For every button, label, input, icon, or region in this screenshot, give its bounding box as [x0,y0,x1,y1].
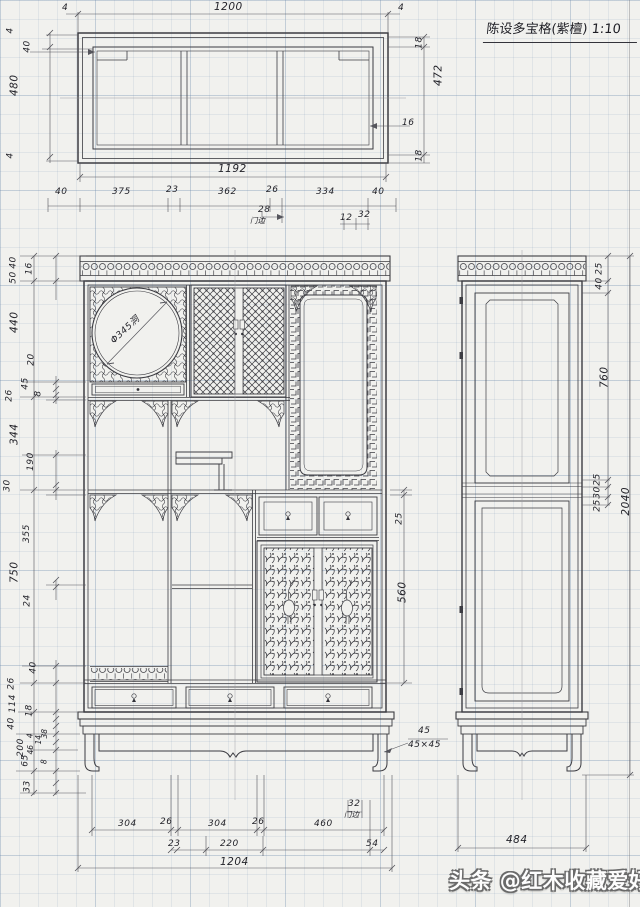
dim-label: 26 [160,818,172,827]
dim-label: 25 [396,512,405,524]
dim-label: 40 [30,661,39,673]
dim-label: 26 [6,389,15,401]
dim-label: 32 [358,211,370,220]
dim-label: 4 [62,4,68,13]
panel-corner-hooks [97,51,369,60]
dim-label: 18 [26,704,35,716]
dim-label: 480 [10,74,21,96]
dim-label: 23 [166,186,178,195]
front-base [78,712,394,771]
dim-label: 30 [594,486,603,498]
step-stand [176,452,232,490]
dim-label: 25 [594,499,603,511]
dim-label: 33 [24,780,33,792]
dim-label: 1192 [218,164,247,175]
blueprint-sheet: 陈设多宝格(紫檀) 1:10 4 1200 4 4 40 480 4 18 47… [0,0,640,907]
dim-label: 38 [41,729,49,739]
dim-label: 24 [24,594,33,606]
dim-label: 28 [258,206,270,215]
bay-balustrade [90,667,168,682]
dim-label: 45 [22,377,31,389]
watermark-toutiao: 头条 @红木收藏爱好者 [449,869,640,894]
dim-label: 40 [596,277,605,289]
dim-label: 560 [398,581,409,603]
paper-edge [629,0,630,907]
dim-label: 30 [4,479,13,491]
dim-label: 26 [266,186,278,195]
dim-label: 304 [208,820,227,829]
dim-label: 54 [366,840,378,849]
side-left-leg [463,734,477,771]
dim-label: 2040 [621,487,632,516]
dim-label: 344 [10,423,21,445]
dim-label: 362 [218,188,237,197]
dim-label: 40 [8,717,17,729]
dim-label: 355 [23,524,32,543]
dim-label: 304 [118,820,137,829]
dim-label: 8 [41,759,49,764]
leg-callout: 45 [418,727,430,736]
dim-label: 4 [398,4,404,13]
dim-label: 20 [28,353,37,365]
dim-label: 40 [10,256,19,268]
dim-label: 50 [10,271,19,283]
dim-label: 760 [600,366,611,388]
door-edge-note: 门边 [250,217,265,225]
top-view [60,33,406,163]
dim-label: 440 [10,311,21,333]
dim-label: 32 [348,800,360,809]
crane-motif [284,600,295,616]
dim-label: 25 [594,473,603,485]
ornate-niche [290,285,377,490]
leg-section-note: 45×45 [408,741,441,750]
dim-label: 18 [416,149,425,161]
dim-label: 25 [596,262,605,274]
dim-label: 23 [168,840,180,849]
lattice-doors [191,285,286,397]
dim-label: 18 [416,36,425,48]
side-right-leg [567,734,581,771]
title-block: 陈设多宝格(紫檀) 1:10 [483,22,639,43]
dim-label: 1200 [214,2,243,13]
dim-label: 114 [9,694,18,713]
dim-label: 484 [506,835,528,846]
dim-label: 375 [112,188,131,197]
dim-label: 16 [26,262,35,274]
moon-circle-panel [90,287,186,395]
drawing-linework [0,0,640,907]
front-apron [99,734,373,757]
dim-label: 12 [340,214,352,223]
dimension-lines [16,11,634,872]
dim-label: 26 [252,818,264,827]
dim-label: 220 [220,840,239,849]
small-drawer-pair [259,497,377,535]
crane-motif [342,600,353,616]
dim-label: 472 [434,64,445,86]
dim-label: 190 [27,452,36,471]
dim-label: 16 [402,119,414,128]
dim-label: 40 [55,188,67,197]
dim-label: 4 [7,27,16,33]
dim-label: 8 [35,390,44,396]
dim-label: 26 [8,677,17,689]
dim-label: 40 [24,40,33,52]
dim-label: 40 [372,188,384,197]
dim-label: 334 [316,188,335,197]
dim-label: 4 [27,733,35,738]
front-right-leg [373,734,387,771]
door-edge-note: 门边 [344,811,359,819]
bottom-drawer-row [92,687,372,708]
dim-label: 460 [314,820,333,829]
dim-label: 65 [22,754,31,766]
dim-label: 4 [7,152,16,158]
dim-label: 750 [10,561,21,583]
carved-crane-doors [257,541,377,682]
front-left-leg [85,734,99,771]
dim-label: 46 [27,745,35,755]
dim-label: 1204 [220,857,249,868]
